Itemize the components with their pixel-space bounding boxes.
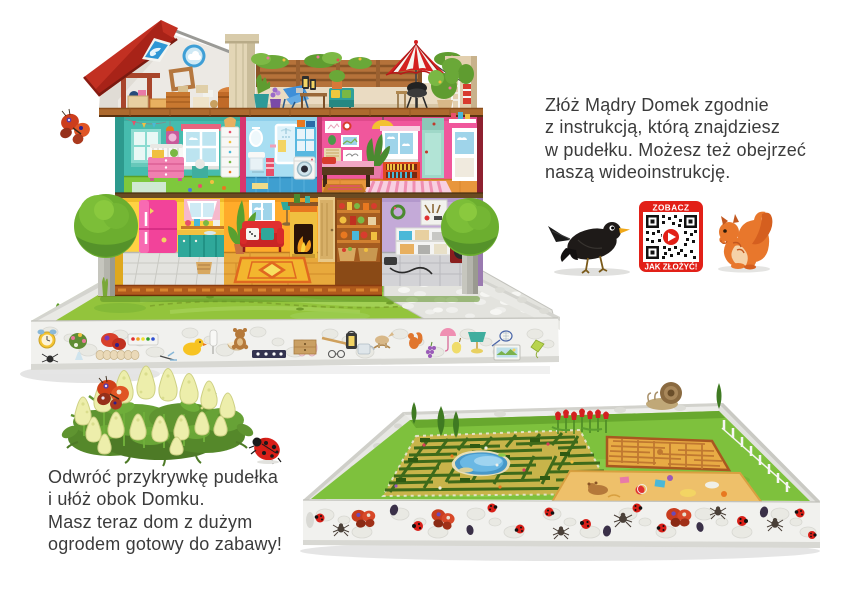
svg-text:JAK ZŁOŻYĆ!: JAK ZŁOŻYĆ! [645, 263, 698, 272]
svg-text:ZOBACZ: ZOBACZ [652, 204, 689, 213]
